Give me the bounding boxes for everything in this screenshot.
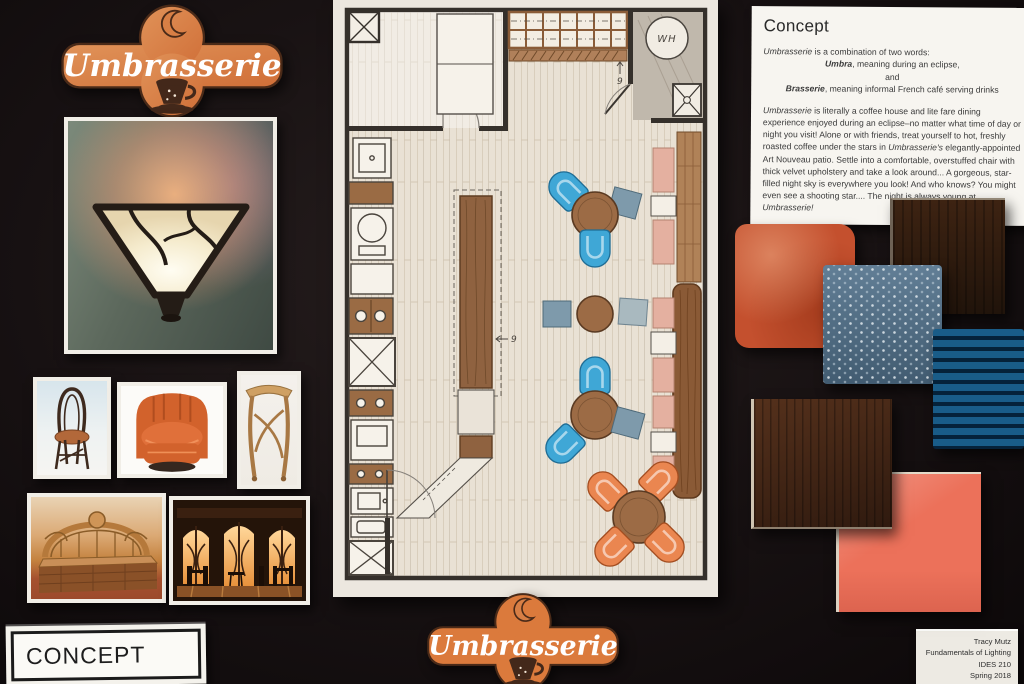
club-chair-illustration xyxy=(121,386,223,474)
blue-dotted-upholstery-swatch xyxy=(823,265,942,384)
teal-ribbed-velvet-swatch xyxy=(933,329,1024,449)
umbrasserie-logo-top: Umbrasserie xyxy=(60,2,284,120)
credit-course-code: IDES 210 xyxy=(923,659,1011,670)
sconce-wall-background xyxy=(68,121,273,350)
credit-author: Tracy Mutz xyxy=(923,636,1011,647)
concept-section-label: CONCEPT xyxy=(6,624,207,684)
cafe-bench-slate xyxy=(543,301,571,327)
orange-club-chair-photo xyxy=(117,382,227,478)
bar-illustration xyxy=(31,497,162,599)
concept-label-text: CONCEPT xyxy=(26,641,146,670)
art-nouveau-console-table-photo xyxy=(237,371,301,489)
console-table-illustration xyxy=(241,375,297,485)
cafe-bench-slate xyxy=(618,298,648,326)
art-nouveau-side-chair-photo xyxy=(33,377,111,479)
water-heater-label: WH xyxy=(657,34,676,45)
cafe-interior-illustration xyxy=(173,500,306,601)
art-nouveau-cafe-interior-photo xyxy=(169,496,310,605)
credit-course-name: Fundamentals of Lighting xyxy=(923,647,1011,658)
kitchen-equipment-line xyxy=(349,138,395,575)
plan-annotation: 9 xyxy=(617,77,623,87)
wall-sconce-photo xyxy=(64,117,277,354)
cafe-chair-blue xyxy=(580,230,610,267)
credit-term: Spring 2018 xyxy=(923,670,1011,681)
umbrasserie-logo-bottom: Umbrasserie xyxy=(426,591,620,684)
logo-badge: Umbrasserie xyxy=(60,2,284,120)
logo-badge: Umbrasserie xyxy=(426,591,620,684)
concept-intro-line: Brasserie, meaning informal French café … xyxy=(763,82,1021,96)
presentation-board: Umbrasserie xyxy=(0,0,1024,684)
concept-text-card: Concept Umbrasserie is a combination of … xyxy=(750,6,1024,226)
plan-annotation: 9 xyxy=(511,335,517,345)
floor-plan-drawing: 9 WH xyxy=(333,0,718,597)
sconce-fixture xyxy=(68,121,273,350)
art-nouveau-bar-photo xyxy=(27,493,166,603)
cafe-chair-blue xyxy=(580,357,610,394)
round-table xyxy=(577,296,613,332)
concept-card-title: Concept xyxy=(764,16,1022,38)
project-credit-card: Tracy Mutz Fundamentals of Lighting IDES… xyxy=(916,629,1018,684)
walnut-wood-panel xyxy=(751,399,892,529)
concept-intro-line: Umbrasserie is a combination of two word… xyxy=(763,45,1021,59)
side-chair-illustration xyxy=(37,381,107,475)
